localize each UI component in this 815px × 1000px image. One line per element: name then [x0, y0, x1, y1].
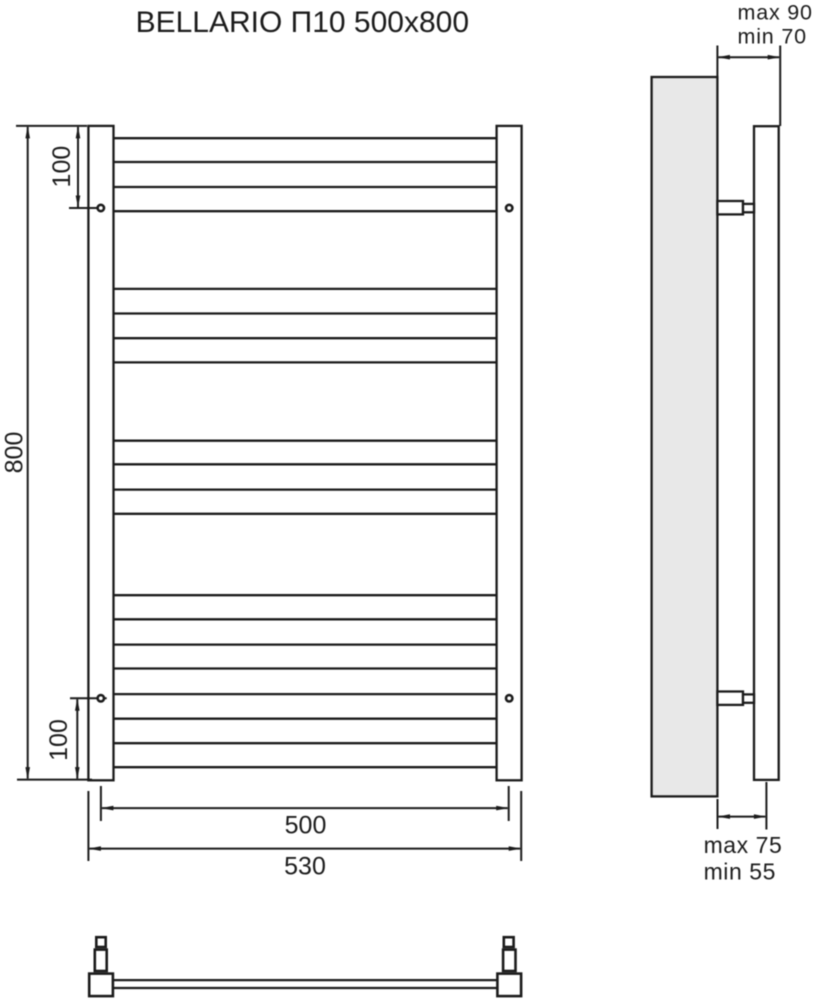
svg-text:max 90: max 90 [738, 0, 813, 24]
svg-text:530: 530 [284, 853, 326, 881]
svg-text:max 75: max 75 [704, 832, 783, 858]
svg-text:100: 100 [48, 146, 76, 188]
svg-text:BELLARIO П10 500x800: BELLARIO П10 500x800 [136, 6, 469, 39]
svg-text:min 70: min 70 [738, 25, 807, 49]
svg-text:800: 800 [0, 432, 28, 474]
svg-text:500: 500 [285, 812, 327, 840]
svg-text:min 55: min 55 [704, 859, 776, 885]
svg-text:100: 100 [45, 719, 73, 761]
